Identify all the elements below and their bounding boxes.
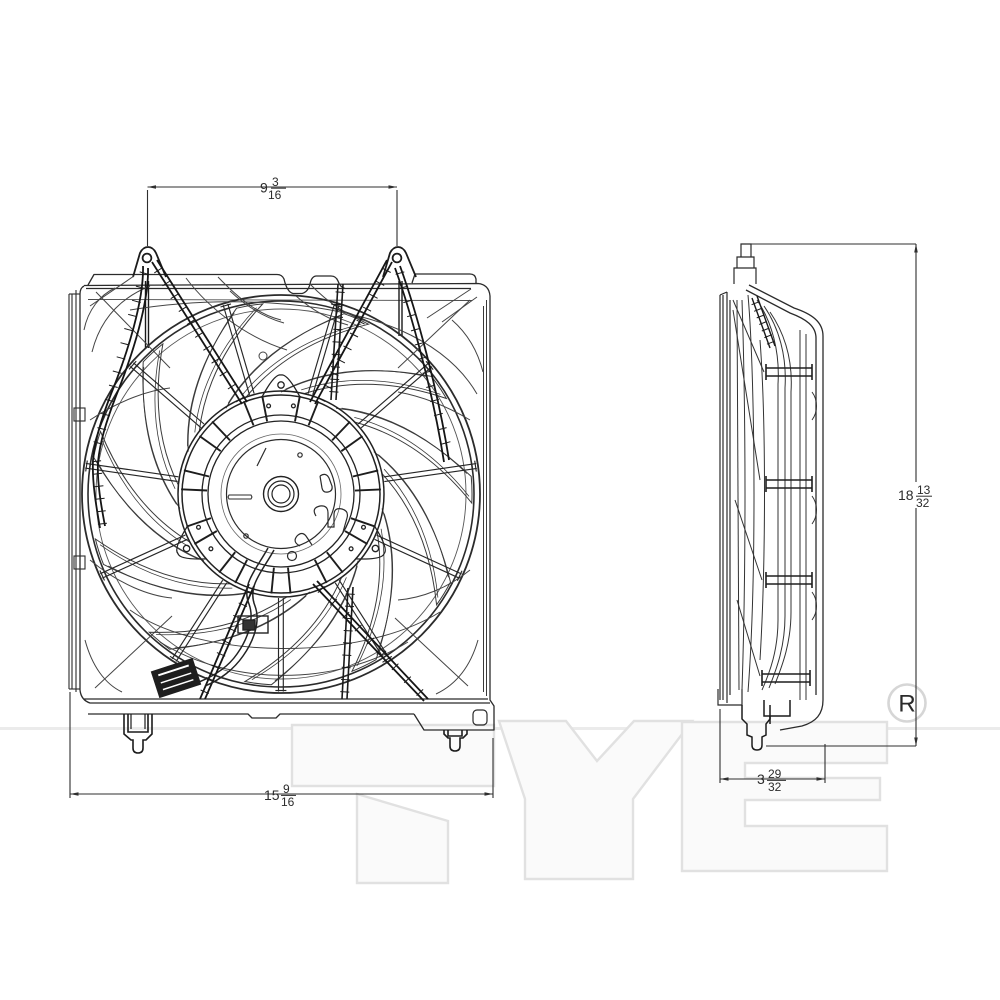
svg-text:9: 9 <box>260 180 268 196</box>
svg-text:9: 9 <box>283 782 290 796</box>
svg-text:32: 32 <box>768 780 782 794</box>
svg-text:16: 16 <box>281 795 295 809</box>
svg-text:15: 15 <box>264 787 280 803</box>
svg-text:16: 16 <box>268 188 282 202</box>
svg-text:18: 18 <box>898 487 914 503</box>
svg-text:29: 29 <box>768 767 782 781</box>
svg-text:R: R <box>898 691 915 718</box>
svg-text:3: 3 <box>272 175 279 189</box>
svg-text:32: 32 <box>916 496 930 510</box>
svg-text:3: 3 <box>757 771 765 787</box>
svg-text:13: 13 <box>917 483 931 497</box>
